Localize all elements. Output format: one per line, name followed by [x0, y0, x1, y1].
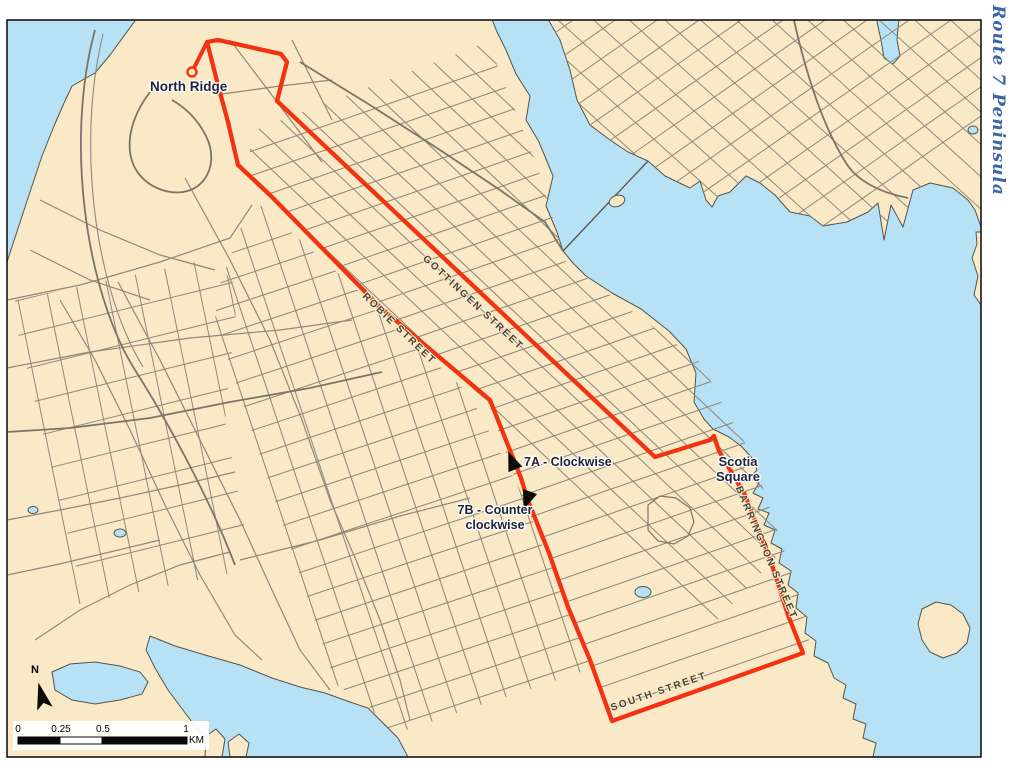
direction-a-label: 7A - Clockwise: [524, 455, 612, 469]
route-map-page: North Ridge 7A - Clockwise 7B - Counter …: [0, 0, 1024, 777]
scale-unit-label: KM: [189, 735, 211, 746]
map-canvas: [0, 0, 1024, 777]
direction-b-line1: 7B - Counter: [458, 503, 533, 517]
scotia-square-label: Scotia Square: [706, 454, 770, 484]
pond: [114, 529, 126, 537]
pond: [635, 587, 651, 598]
scotia-square-line1: Scotia: [718, 454, 757, 469]
scotia-square-line2: Square: [716, 469, 760, 484]
pond: [28, 507, 38, 514]
scale-tick-0: 0: [12, 724, 24, 735]
pond: [968, 126, 978, 134]
north-arrow-n-label: N: [31, 664, 39, 676]
map-layers: [7, 0, 1024, 763]
route-terminus-marker: [188, 68, 197, 77]
map-side-title: Route 7 Peninsula: [988, 5, 1008, 235]
direction-b-line2: clockwise: [465, 518, 524, 532]
scale-tick-05: 0.5: [89, 724, 117, 735]
direction-b-label: 7B - Counter clockwise: [445, 503, 545, 533]
scale-tick-1: 1: [180, 724, 192, 735]
scale-tick-025: 0.25: [47, 724, 75, 735]
terminus-label: North Ridge: [150, 79, 227, 94]
